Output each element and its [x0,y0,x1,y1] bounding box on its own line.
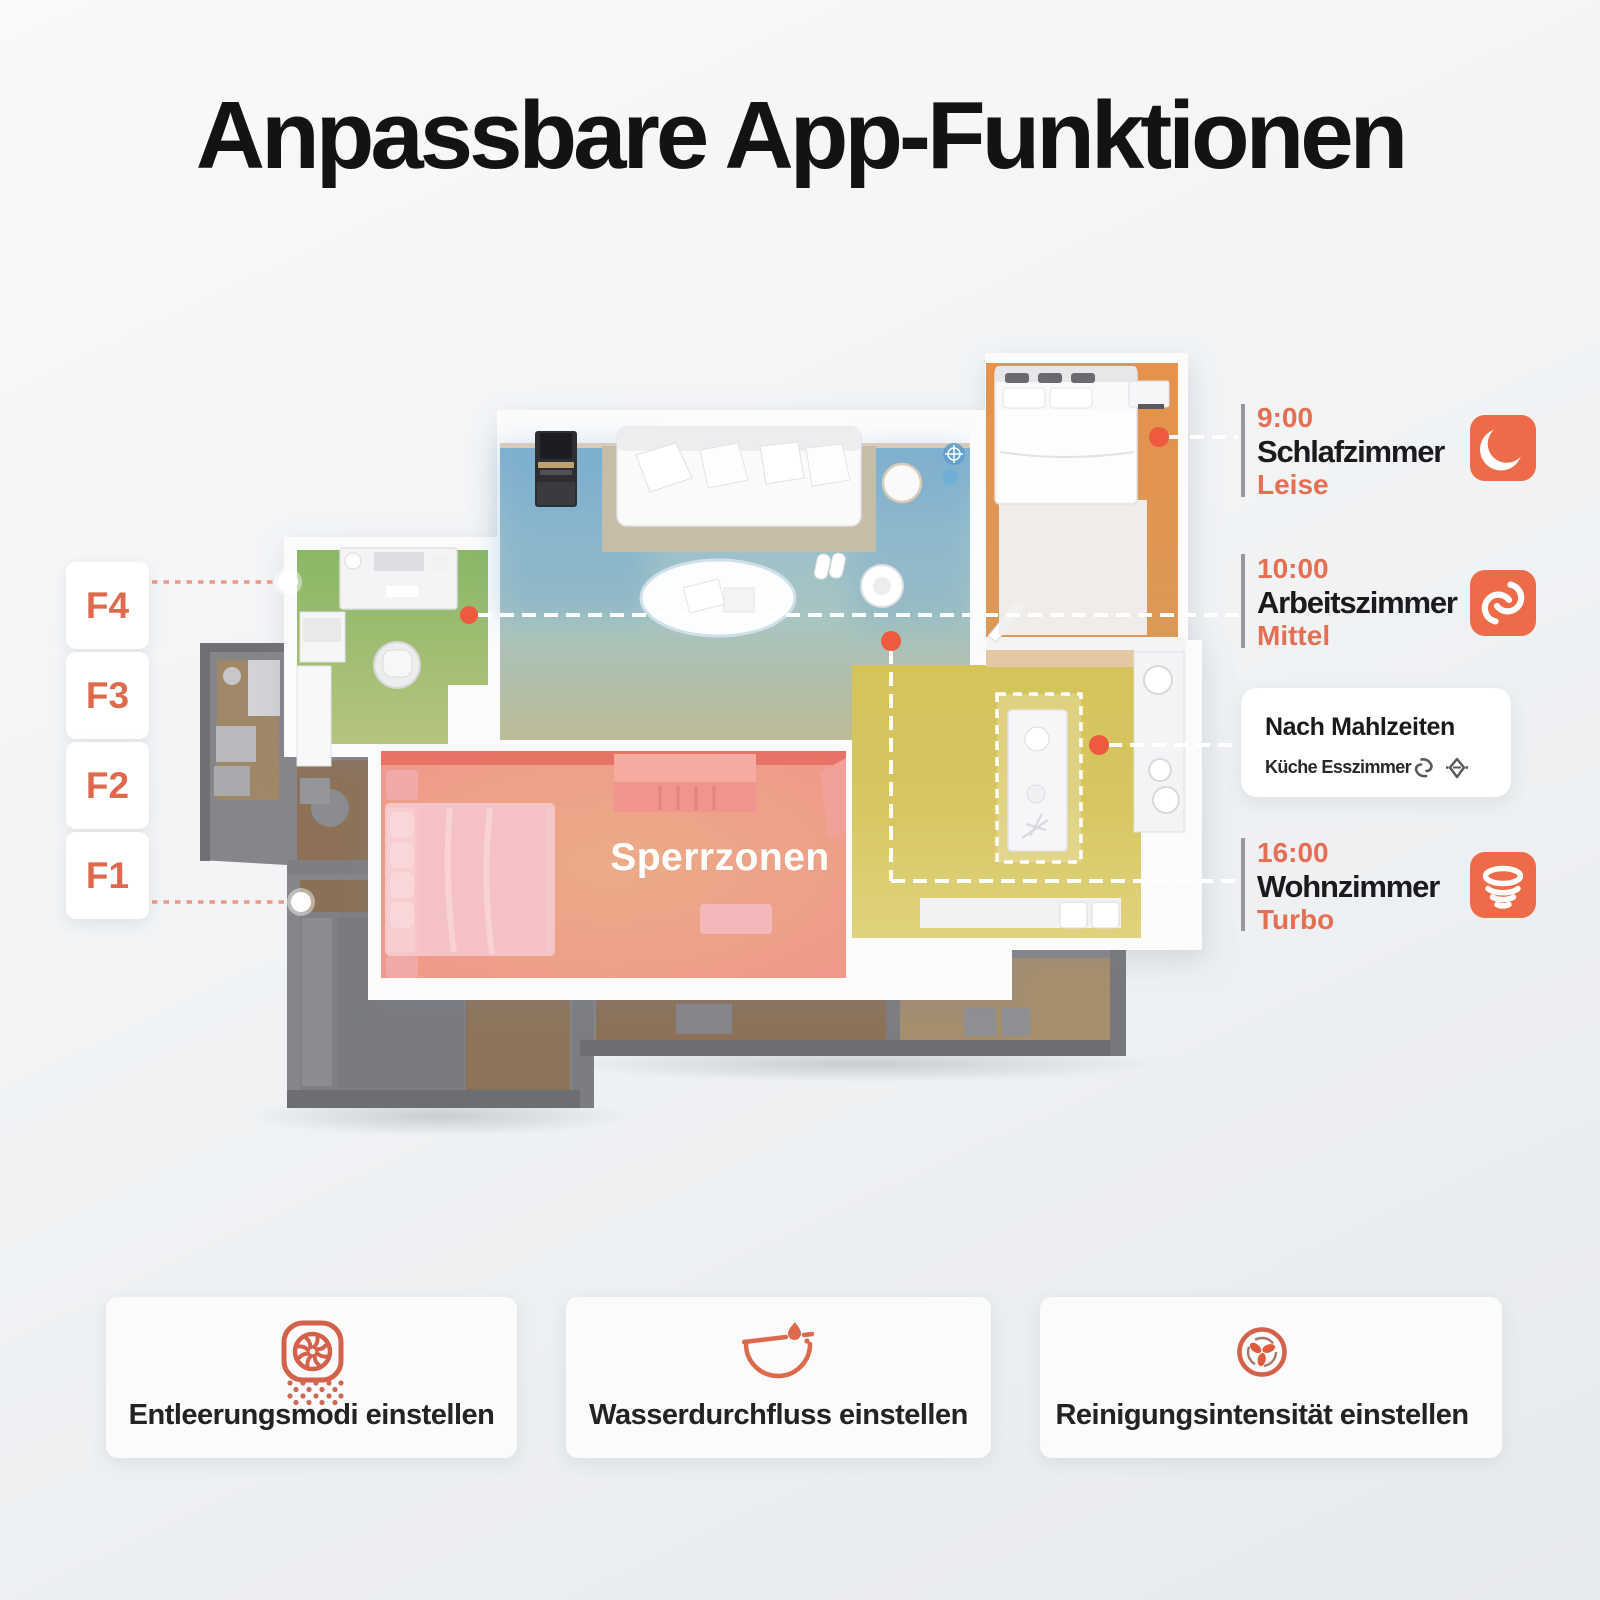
svg-text:Sperrzonen: Sperrzonen [610,836,830,879]
